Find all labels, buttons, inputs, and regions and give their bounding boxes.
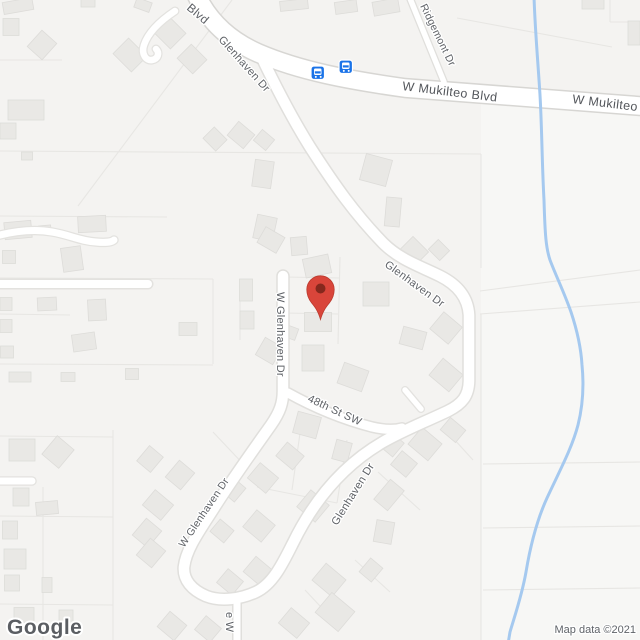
- building-footprint: [35, 501, 58, 516]
- building-footprint: [290, 236, 308, 255]
- building-footprint: [3, 521, 18, 539]
- building-footprint: [252, 159, 275, 188]
- building-footprint: [628, 21, 640, 45]
- building-footprint: [22, 152, 33, 160]
- map-container[interactable]: Blvd Glenhaven Dr Ridgemont Dr W Mukilte…: [0, 0, 640, 640]
- building-footprint: [37, 297, 57, 311]
- building-footprint: [302, 345, 324, 371]
- building-footprint: [61, 373, 75, 382]
- building-footprint: [87, 299, 106, 321]
- building-footprint: [3, 19, 19, 36]
- building-footprint: [0, 298, 12, 311]
- building-footprint: [4, 549, 26, 569]
- building-footprint: [0, 320, 12, 333]
- map-canvas[interactable]: Blvd Glenhaven Dr Ridgemont Dr W Mukilte…: [0, 0, 640, 640]
- building-footprint: [0, 123, 16, 139]
- building-footprint: [240, 311, 254, 329]
- building-footprint: [126, 369, 139, 380]
- building-footprint: [582, 0, 604, 9]
- building-footprint: [5, 575, 20, 591]
- building-footprint: [78, 215, 107, 232]
- building-footprint: [3, 251, 16, 264]
- building-footprint: [363, 282, 389, 306]
- building-footprint: [13, 488, 29, 506]
- street-label-w-glenhaven-upper: W Glenhaven Dr: [274, 292, 286, 377]
- greenbelt-area: [481, 100, 640, 640]
- bus-stop-icon[interactable]: [311, 66, 325, 80]
- building-footprint: [42, 578, 52, 593]
- google-logo[interactable]: Google: [7, 616, 82, 639]
- building-footprint: [384, 197, 401, 227]
- bus-stop-icon[interactable]: [339, 60, 353, 74]
- building-footprint: [240, 279, 253, 301]
- map-attribution: Map data ©2021: [555, 624, 637, 636]
- building-footprint: [71, 332, 96, 352]
- building-footprint: [179, 323, 197, 336]
- street-label-partial-e-w: e W: [223, 612, 235, 633]
- building-footprint: [60, 246, 83, 273]
- building-footprint: [334, 0, 357, 14]
- building-footprint: [8, 100, 44, 120]
- building-footprint: [1, 346, 14, 358]
- building-footprint: [373, 520, 395, 545]
- building-footprint: [9, 372, 31, 382]
- building-footprint: [9, 439, 35, 461]
- building-footprint: [305, 313, 332, 332]
- building-footprint: [81, 0, 95, 7]
